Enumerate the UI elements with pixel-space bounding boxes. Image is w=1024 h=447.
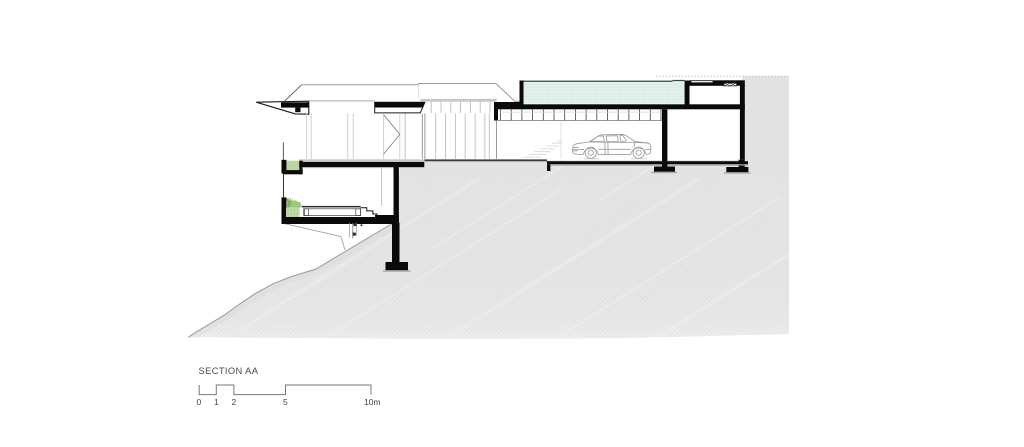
svg-text:2: 2 [232,397,237,407]
svg-text:0: 0 [197,397,202,407]
svg-text:1: 1 [214,397,219,407]
svg-text:5: 5 [283,397,288,407]
svg-text:SECTION AA: SECTION AA [199,366,259,376]
svg-text:10m: 10m [364,397,381,407]
